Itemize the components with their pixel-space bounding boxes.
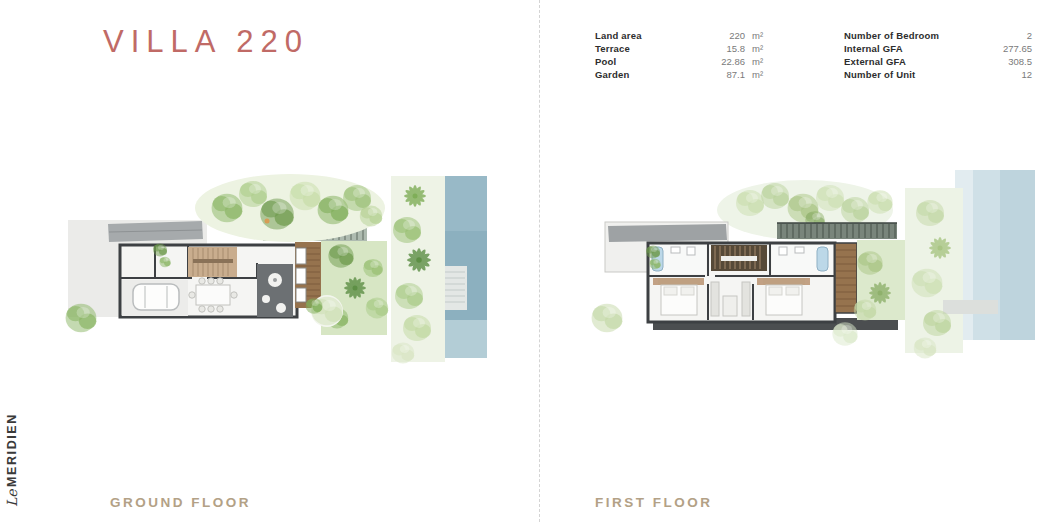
top-greenery [195, 174, 385, 242]
villa-building [120, 245, 297, 317]
first-floor-label: FIRST FLOOR [595, 495, 713, 510]
front-tree [592, 304, 623, 333]
deck [295, 242, 321, 308]
spec-value: 277.65 [976, 44, 1032, 54]
spec-label: Terrace [595, 44, 697, 54]
front-tree [66, 304, 97, 333]
stairs [711, 245, 767, 271]
garage-car [122, 280, 188, 316]
spec-unit: m² [745, 44, 771, 54]
spec-value: 15.8 [697, 44, 745, 54]
brand-logo-script: Le [4, 489, 20, 507]
ground-floor-label: GROUND FLOOR [110, 495, 251, 510]
stairs [188, 247, 237, 277]
spec-label: Garden [595, 70, 697, 80]
brand-logo: Le MERIDIEN [4, 408, 20, 510]
first-floor-plan-image [545, 168, 1035, 378]
balcony-deck [835, 243, 857, 313]
spec-table: Land area 220 m² Terrace 15.8 m² Pool 22… [595, 31, 1032, 80]
ground-floor-plan-image [55, 168, 535, 378]
kitchen-block [257, 264, 293, 317]
spec-group-areas: Land area 220 m² Terrace 15.8 m² Pool 22… [595, 31, 771, 80]
page-divider [539, 0, 540, 522]
brochure-page: VILLA 220 Land area 220 m² Terrace 15.8 … [0, 0, 1050, 522]
bedroom-1 [653, 278, 704, 315]
spec-label: Internal GFA [844, 44, 976, 54]
pergola [777, 223, 897, 239]
deck-tree [832, 322, 857, 345]
spec-label: External GFA [844, 57, 976, 67]
spec-unit: m² [745, 70, 771, 80]
spec-label: Number of Bedroom [844, 31, 976, 41]
spec-unit: m² [745, 57, 771, 67]
spec-value: 308.5 [976, 57, 1032, 67]
spec-value: 2 [976, 31, 1032, 41]
water-area-pale [955, 170, 1035, 340]
spec-label: Pool [595, 57, 697, 67]
spec-value: 22.86 [697, 57, 745, 67]
spec-value: 87.1 [697, 70, 745, 80]
bathroom-right [772, 245, 833, 274]
deck-tree [306, 295, 343, 327]
spec-unit: m² [745, 31, 771, 41]
spec-label: Land area [595, 31, 697, 41]
spec-value: 12 [976, 70, 1032, 80]
spec-group-units: Number of Bedroom 2 Internal GFA 277.65 … [844, 31, 1032, 80]
spec-value: 220 [697, 31, 745, 41]
water-area [439, 176, 487, 358]
page-title: VILLA 220 [103, 24, 309, 60]
brand-logo-caps: MERIDIEN [5, 413, 19, 487]
side-garden-pale [854, 240, 905, 320]
spec-label: Number of Unit [844, 70, 976, 80]
